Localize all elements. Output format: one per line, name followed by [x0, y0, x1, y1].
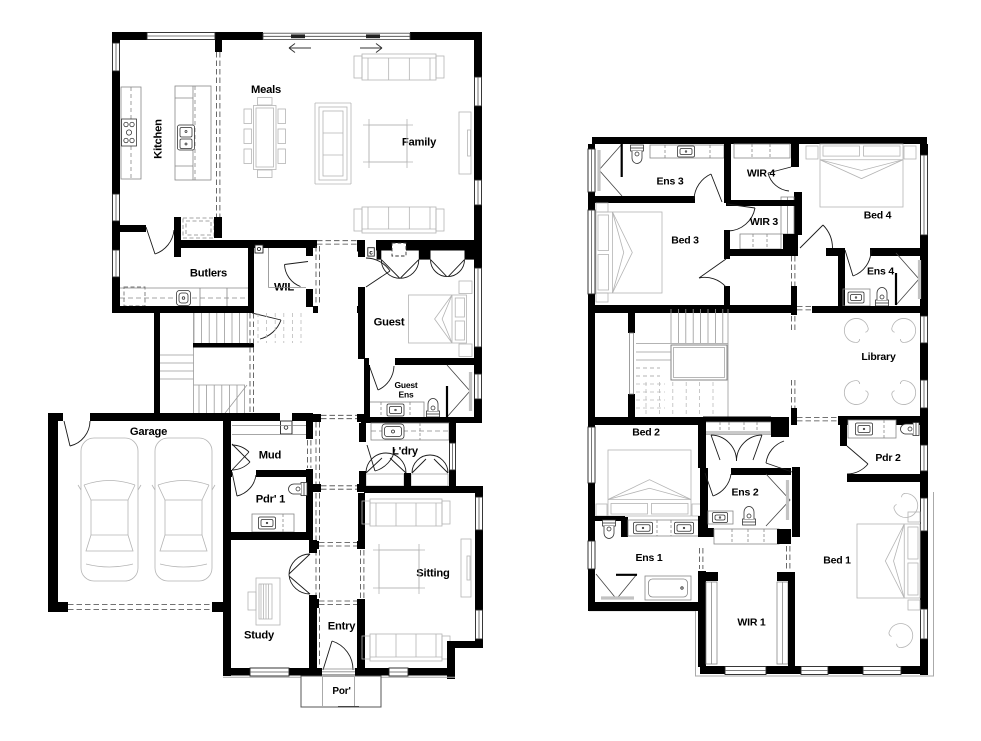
- svg-text:WIR 1: WIR 1: [737, 617, 766, 629]
- svg-text:Kitchen: Kitchen: [153, 119, 165, 159]
- svg-text:Entry: Entry: [328, 621, 357, 633]
- svg-text:Ens 1: Ens 1: [635, 552, 662, 564]
- svg-text:Sitting: Sitting: [416, 568, 450, 580]
- svg-text:Pdr 2: Pdr 2: [875, 452, 901, 464]
- svg-text:Ens 3: Ens 3: [656, 176, 683, 188]
- svg-text:Meals: Meals: [251, 84, 281, 96]
- svg-text:c: c: [369, 250, 373, 257]
- svg-text:Garage: Garage: [130, 426, 167, 438]
- svg-text:Por': Por': [332, 686, 350, 697]
- svg-text:Butlers: Butlers: [190, 268, 227, 280]
- svg-text:Ens 2: Ens 2: [731, 487, 758, 499]
- svg-text:Ens: Ens: [399, 390, 414, 400]
- svg-text:Guest: Guest: [374, 317, 405, 329]
- svg-text:Mud: Mud: [259, 450, 282, 462]
- svg-text:Bed 3: Bed 3: [671, 235, 699, 247]
- svg-text:Bed 2: Bed 2: [632, 427, 660, 439]
- svg-text:Bed 1: Bed 1: [823, 555, 851, 567]
- svg-text:WIR 3: WIR 3: [750, 216, 779, 228]
- svg-text:WIR 4: WIR 4: [747, 168, 776, 180]
- svg-text:Library: Library: [861, 351, 896, 363]
- svg-text:Bed 4: Bed 4: [864, 210, 892, 222]
- svg-text:Ens 4: Ens 4: [867, 266, 894, 278]
- svg-text:Pdr' 1: Pdr' 1: [256, 494, 285, 506]
- svg-text:Study: Study: [244, 630, 275, 642]
- svg-text:Guest: Guest: [394, 380, 417, 390]
